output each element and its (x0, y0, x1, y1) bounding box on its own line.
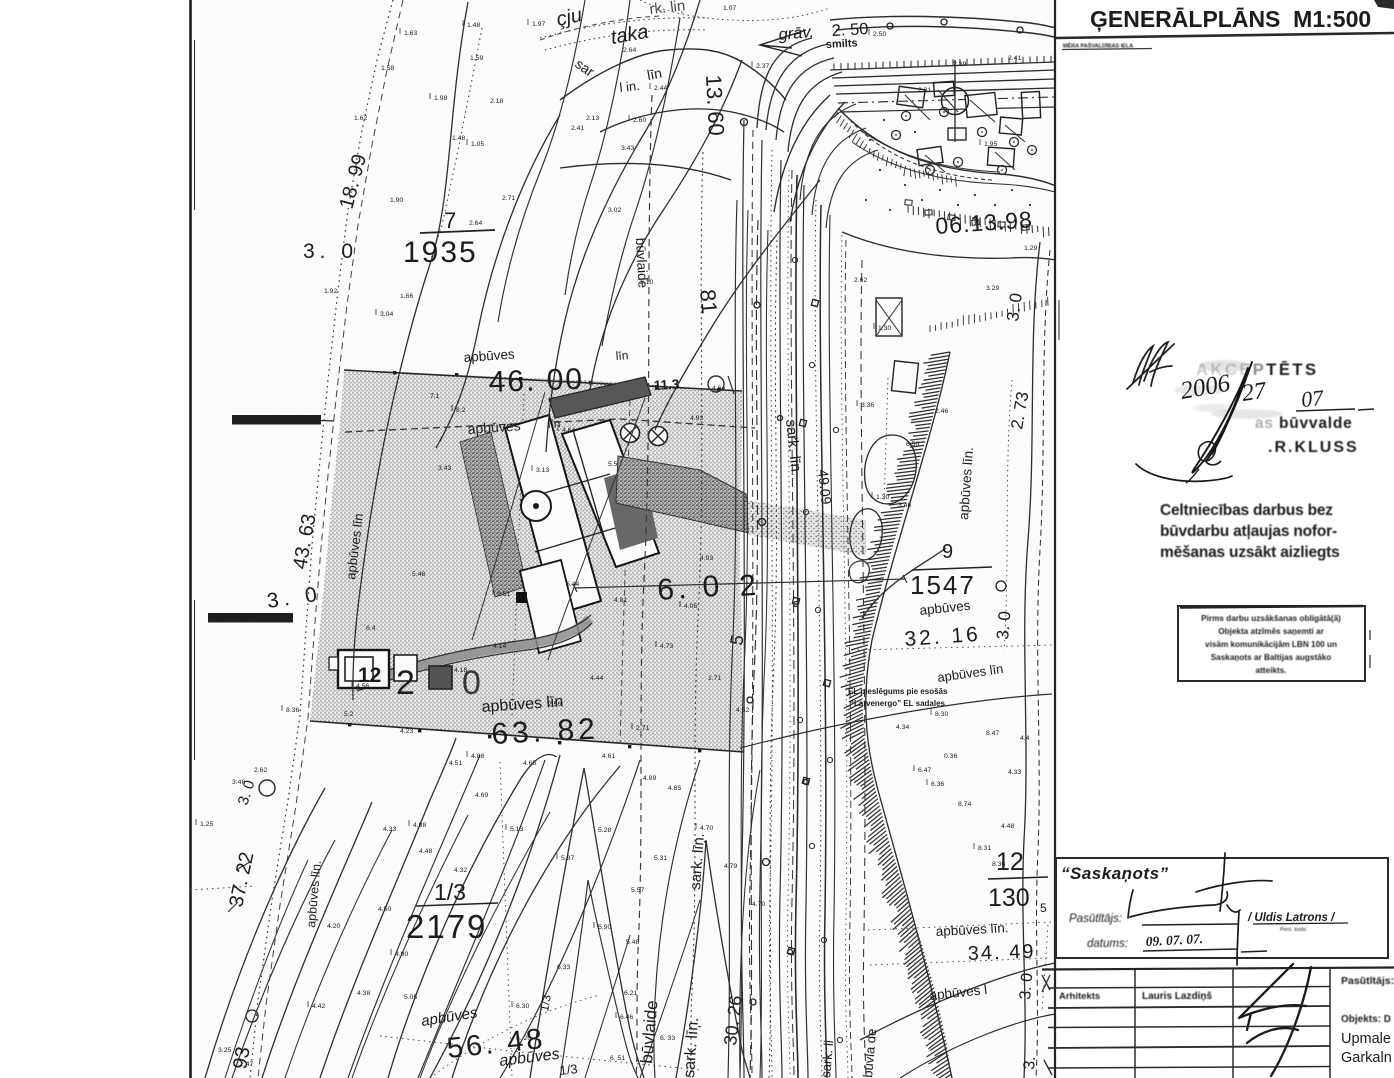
svg-text:mēšanas uzsākt aizliegts: mēšanas uzsākt aizliegts (1160, 544, 1340, 561)
svg-text:Objekts: D: Objekts: D (1341, 1014, 1391, 1025)
svg-text:“Saskaņots”: “Saskaņots” (1061, 864, 1169, 883)
svg-text:Pirms darbu uzsākšanas obligāt: Pirms darbu uzsākšanas obligātā(ā) (1201, 614, 1341, 623)
svg-text:Pers. kods: Pers. kods (1280, 927, 1306, 933)
svg-text:ĢENERĀLPLĀNS M1:500: ĢENERĀLPLĀNS M1:500 (1090, 6, 1371, 32)
svg-text:Objekta atzīmēs saņemti ar: Objekta atzīmēs saņemti ar (1218, 627, 1324, 636)
svg-text:Garkaln: Garkaln (1341, 1050, 1392, 1066)
svg-text:Pasūtītājs:: Pasūtītājs: (1069, 913, 1122, 925)
svg-text:Upmale: Upmale (1341, 1031, 1391, 1047)
svg-text:Celtniecības darbus bez: Celtniecības darbus bez (1160, 502, 1333, 519)
svg-text:as būvvalde: as būvvalde (1255, 415, 1353, 432)
svg-text:Arhitekts: Arhitekts (1059, 991, 1100, 1002)
svg-text:datums:: datums: (1087, 938, 1128, 950)
svg-text:visām komunikācijām LBN 100 un: visām komunikācijām LBN 100 un (1205, 640, 1337, 649)
svg-text:būvdarbu atļaujas nofor-: būvdarbu atļaujas nofor- (1160, 523, 1337, 540)
svg-text:Saskaņots ar Baltijas augstāko: Saskaņots ar Baltijas augstāko (1211, 653, 1332, 662)
svg-text:09. 07. 07.: 09. 07. 07. (1145, 931, 1203, 949)
svg-text:07: 07 (1300, 385, 1325, 412)
svg-text:Lauris Lazdiņš: Lauris Lazdiņš (1142, 991, 1212, 1002)
svg-text:Pasūtītājs:: Pasūtītājs: (1341, 975, 1394, 987)
svg-text:.R.KLUSS: .R.KLUSS (1268, 439, 1359, 456)
svg-text:/ Uldis Latrons /: / Uldis Latrons / (1247, 912, 1336, 924)
svg-text:atteikts.: atteikts. (1256, 666, 1287, 675)
